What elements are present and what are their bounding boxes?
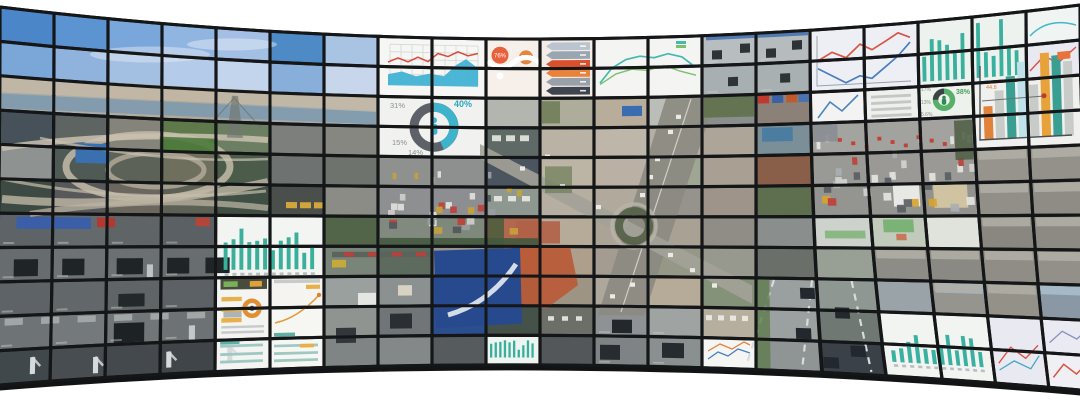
svg-text:31%: 31% <box>390 101 405 110</box>
svg-text:76%: 76% <box>494 53 507 59</box>
svg-text:13%: 13% <box>921 100 932 106</box>
svg-text:38%: 38% <box>956 89 971 96</box>
svg-text:15%: 15% <box>392 138 407 147</box>
svg-text:44.8: 44.8 <box>986 85 997 91</box>
svg-text:40%: 40% <box>454 99 472 109</box>
